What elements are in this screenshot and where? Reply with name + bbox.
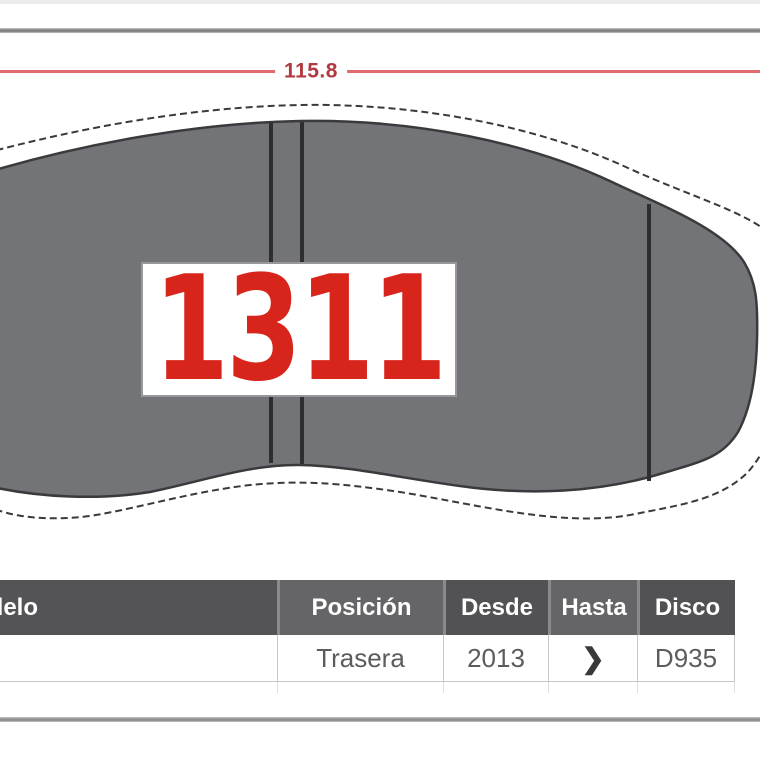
bottom-divider bbox=[0, 717, 760, 722]
column-header-posicion: Posición bbox=[280, 580, 443, 635]
cell-disco: D935 bbox=[638, 635, 735, 681]
next-row-stub bbox=[443, 682, 444, 693]
next-row-stub bbox=[548, 682, 549, 693]
column-header-disco: Disco bbox=[640, 580, 735, 635]
modelo-clip: Modelo bbox=[0, 580, 38, 635]
table-header-row: Modelo Posición Desde Hasta Disco bbox=[0, 580, 735, 635]
cell-modelo bbox=[0, 635, 278, 681]
next-row-stub bbox=[637, 682, 638, 693]
next-row-stub bbox=[277, 682, 278, 693]
part-number: 1311 bbox=[154, 257, 445, 402]
cell-posicion: Trasera bbox=[278, 635, 444, 681]
part-number-box: 1311 bbox=[141, 262, 457, 397]
next-row-stub bbox=[734, 682, 735, 693]
column-header-desde: Desde bbox=[446, 580, 548, 635]
table-data-row: Trasera 2013 ❯ D935 bbox=[0, 635, 735, 682]
fitment-table: Modelo Posición Desde Hasta Disco Traser… bbox=[0, 580, 735, 682]
column-header-modelo: Modelo bbox=[0, 580, 277, 635]
cell-desde: 2013 bbox=[444, 635, 549, 681]
column-header-hasta: Hasta bbox=[551, 580, 637, 635]
product-card: 115.8 1311 Modelo Posición Desde Hasta D… bbox=[0, 0, 760, 760]
cell-hasta-next-arrow: ❯ bbox=[549, 635, 638, 681]
